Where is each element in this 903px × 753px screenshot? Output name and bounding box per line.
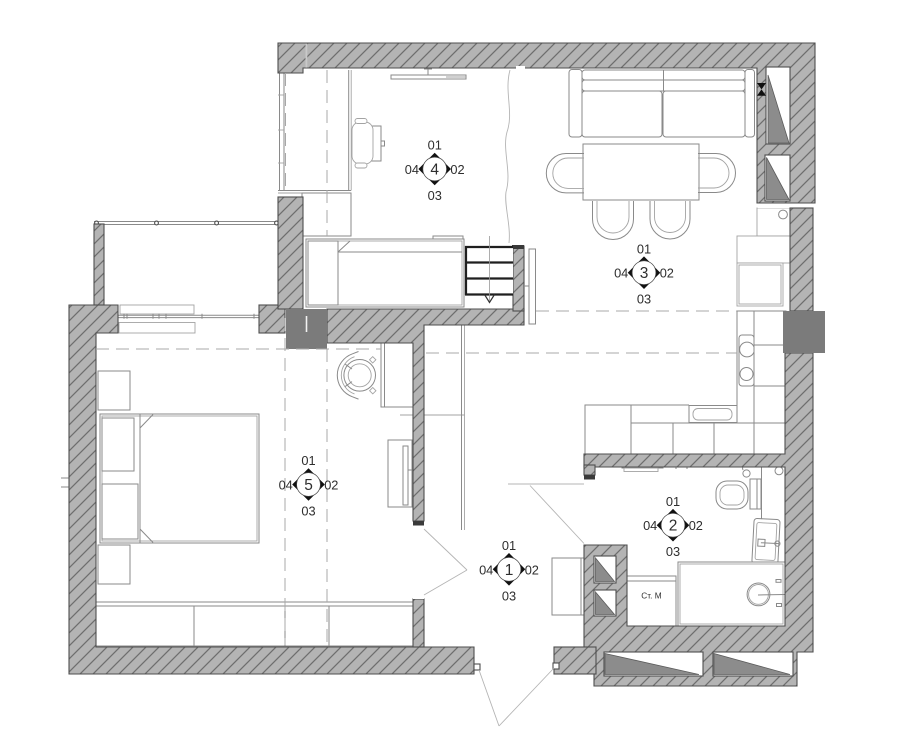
svg-text:04: 04	[279, 478, 293, 493]
svg-text:03: 03	[428, 188, 442, 203]
svg-text:03: 03	[637, 292, 651, 307]
svg-text:01: 01	[301, 453, 315, 468]
svg-text:03: 03	[301, 504, 315, 519]
svg-text:03: 03	[666, 544, 680, 559]
svg-text:3: 3	[640, 265, 649, 282]
svg-text:02: 02	[450, 162, 464, 177]
svg-text:2: 2	[669, 518, 678, 535]
svg-text:5: 5	[304, 477, 313, 494]
svg-text:4: 4	[430, 162, 439, 179]
svg-text:04: 04	[479, 562, 493, 577]
svg-text:01: 01	[502, 538, 516, 553]
svg-text:Ст. М: Ст. М	[641, 591, 661, 601]
svg-text:02: 02	[689, 518, 703, 533]
svg-text:02: 02	[660, 266, 674, 281]
svg-text:01: 01	[428, 138, 442, 153]
svg-text:02: 02	[525, 562, 539, 577]
svg-text:03: 03	[502, 588, 516, 603]
svg-text:02: 02	[324, 478, 338, 493]
svg-text:04: 04	[405, 162, 419, 177]
svg-text:01: 01	[637, 241, 651, 256]
svg-text:04: 04	[614, 266, 628, 281]
svg-text:1: 1	[505, 562, 514, 579]
svg-text:04: 04	[643, 518, 657, 533]
svg-text:01: 01	[666, 494, 680, 509]
